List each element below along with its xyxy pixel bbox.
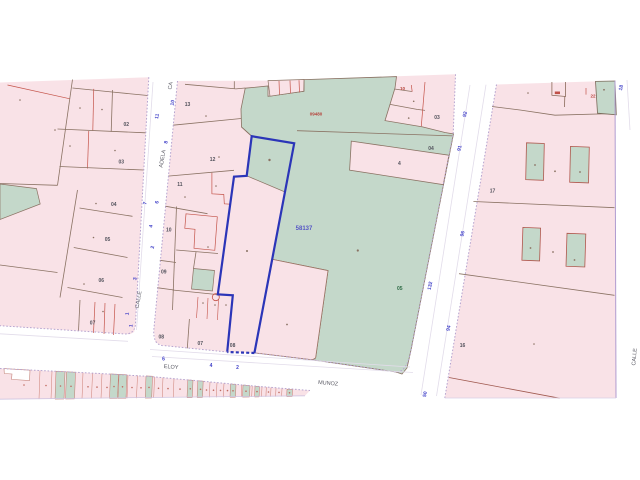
svg-text:05: 05 bbox=[105, 237, 111, 243]
svg-text:08: 08 bbox=[159, 335, 165, 341]
svg-text:58137: 58137 bbox=[296, 226, 313, 232]
svg-text:10: 10 bbox=[400, 86, 406, 91]
svg-text:6: 6 bbox=[162, 357, 165, 363]
svg-text:03: 03 bbox=[119, 160, 125, 166]
svg-text:07: 07 bbox=[198, 341, 204, 347]
svg-text:4: 4 bbox=[210, 363, 213, 369]
svg-text:09480: 09480 bbox=[310, 112, 323, 117]
svg-text:16: 16 bbox=[460, 343, 466, 349]
svg-text:4: 4 bbox=[398, 161, 401, 167]
svg-text:10: 10 bbox=[166, 228, 172, 234]
svg-text:04: 04 bbox=[111, 202, 117, 208]
svg-text:05: 05 bbox=[397, 286, 403, 292]
svg-text:12: 12 bbox=[210, 157, 216, 163]
svg-text:03: 03 bbox=[434, 115, 440, 121]
svg-text:11: 11 bbox=[177, 182, 183, 188]
svg-text:13: 13 bbox=[185, 102, 191, 108]
svg-text:ELOY: ELOY bbox=[164, 364, 179, 371]
svg-text:08: 08 bbox=[230, 343, 236, 349]
svg-text:06: 06 bbox=[99, 278, 105, 284]
svg-text:2: 2 bbox=[236, 365, 239, 371]
svg-text:17: 17 bbox=[490, 188, 496, 194]
svg-text:22: 22 bbox=[590, 94, 596, 99]
svg-text:07: 07 bbox=[90, 321, 96, 327]
svg-text:04: 04 bbox=[428, 146, 434, 152]
svg-text:09: 09 bbox=[161, 270, 167, 276]
svg-text:02: 02 bbox=[124, 122, 130, 128]
